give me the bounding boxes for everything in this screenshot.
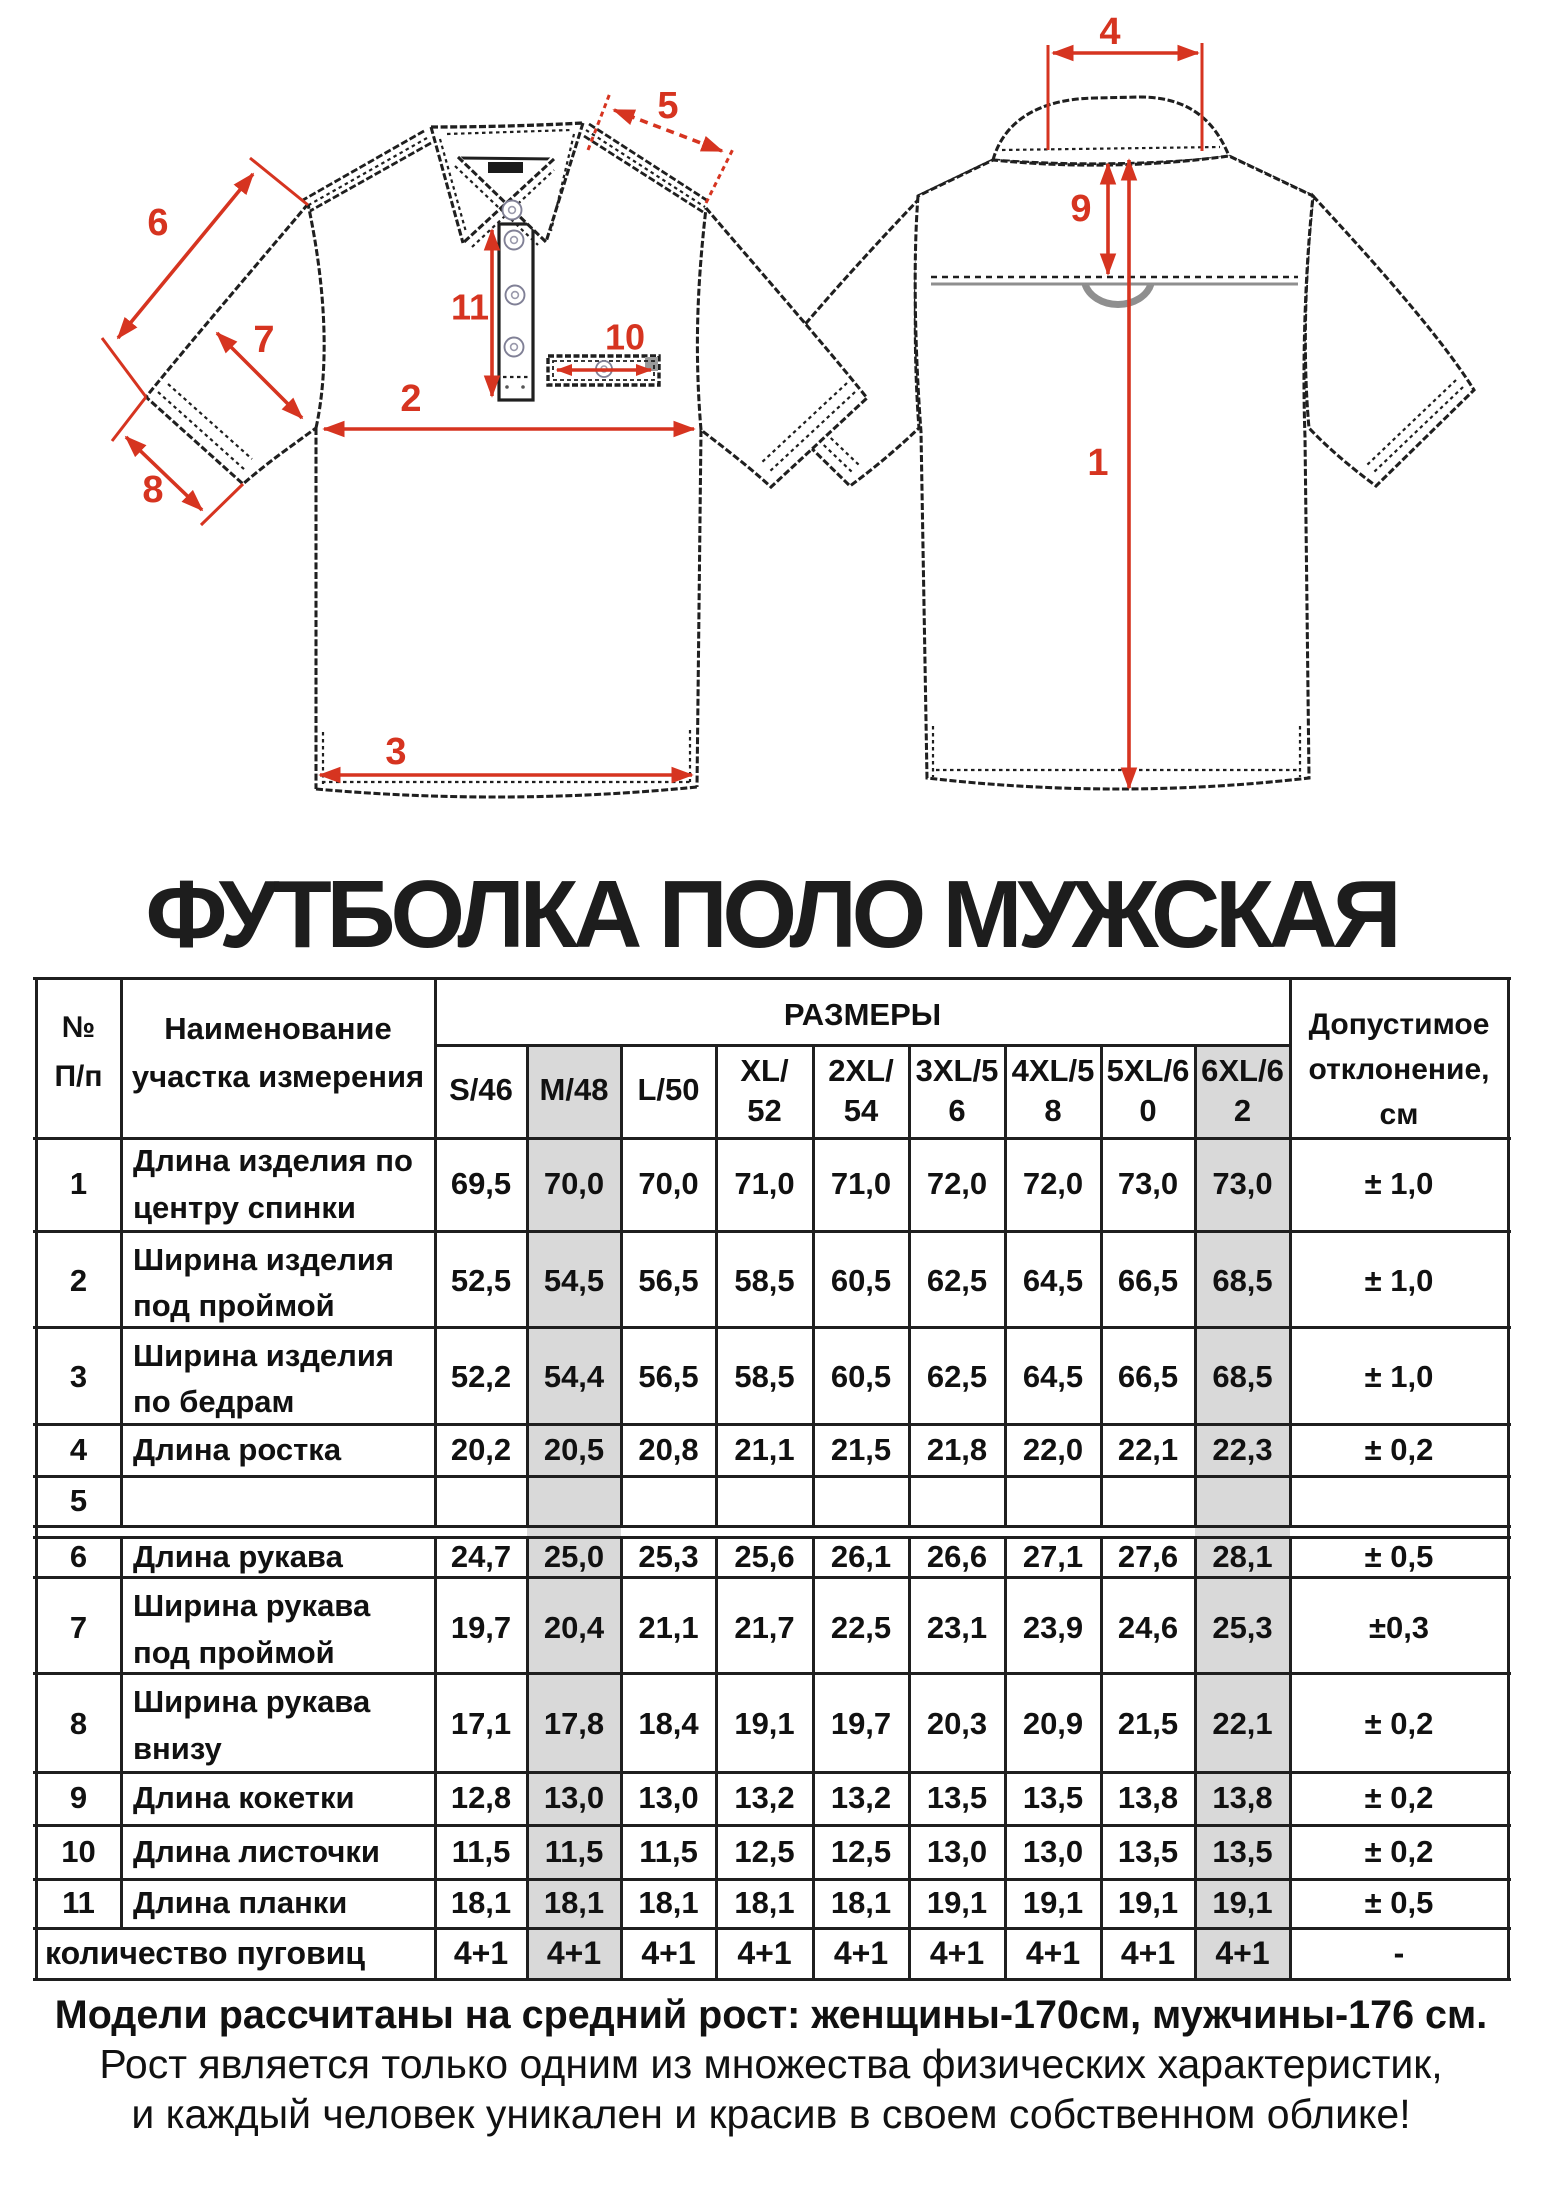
svg-text:10: 10 (605, 317, 645, 358)
svg-text:1: 1 (1087, 442, 1108, 484)
svg-text:5: 5 (657, 85, 678, 127)
svg-text:4: 4 (1099, 11, 1120, 53)
svg-text:8: 8 (142, 469, 163, 511)
svg-text:6: 6 (147, 202, 168, 244)
svg-text:3: 3 (385, 731, 406, 773)
svg-text:2: 2 (400, 378, 421, 420)
svg-text:11: 11 (451, 287, 489, 328)
svg-text:9: 9 (1070, 188, 1091, 230)
svg-text:7: 7 (253, 319, 274, 361)
